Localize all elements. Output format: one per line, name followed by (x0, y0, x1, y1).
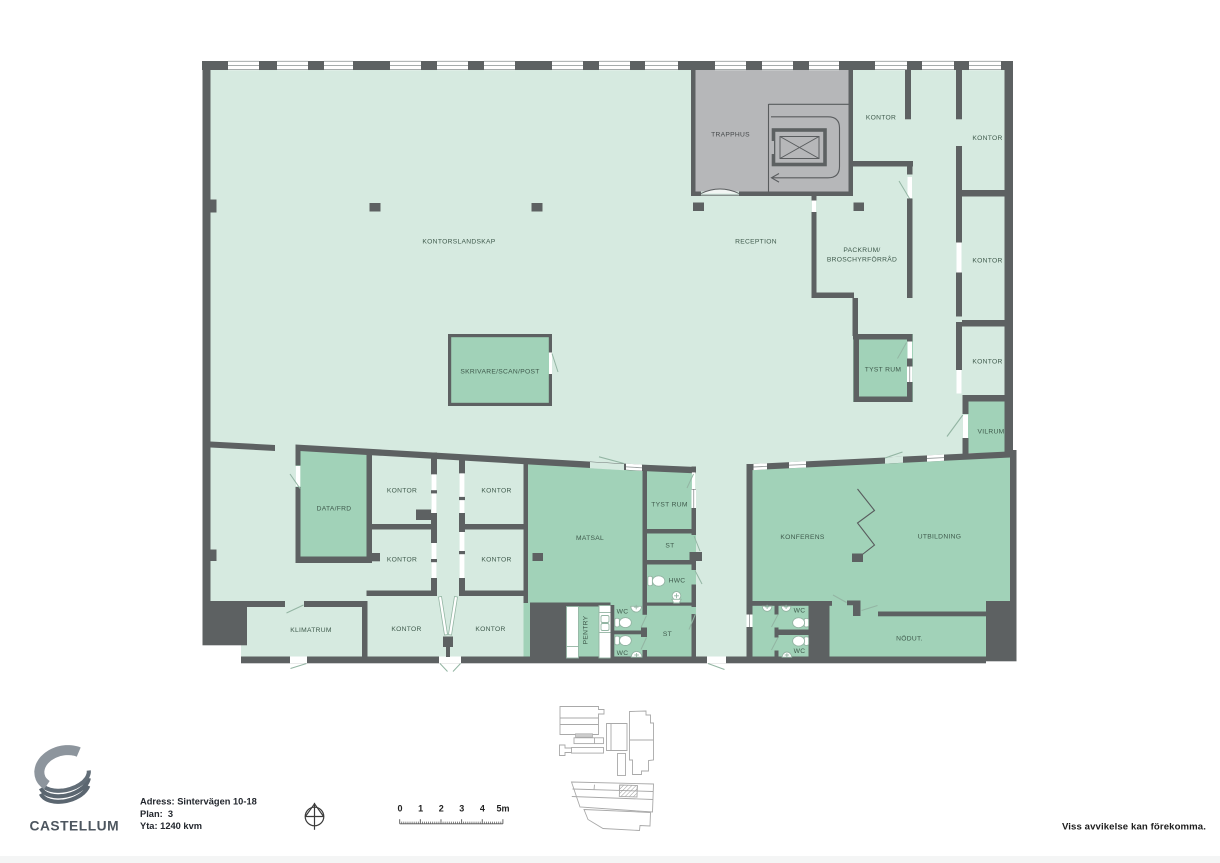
svg-text:KONTOR: KONTOR (972, 359, 1002, 366)
svg-text:1: 1 (418, 804, 423, 814)
svg-text:TYST RUM: TYST RUM (651, 502, 688, 509)
svg-text:HWC: HWC (669, 578, 686, 585)
svg-text:PACKRUM/: PACKRUM/ (843, 247, 880, 254)
svg-text:NÖDUT.: NÖDUT. (896, 635, 923, 643)
svg-text:WC: WC (794, 648, 806, 655)
svg-text:SKRIVARE/SCAN/POST: SKRIVARE/SCAN/POST (460, 369, 539, 376)
svg-text:0: 0 (397, 804, 402, 814)
svg-text:KONTOR: KONTOR (475, 626, 505, 633)
svg-text:5m: 5m (496, 804, 509, 814)
svg-text:CASTELLUM: CASTELLUM (30, 819, 120, 834)
svg-text:WC: WC (794, 608, 806, 615)
svg-text:Viss avvikelse kan förekomma.: Viss avvikelse kan förekomma. (1062, 822, 1206, 833)
svg-text:KONTOR: KONTOR (481, 557, 511, 564)
svg-text:KONFERENS: KONFERENS (780, 534, 825, 541)
svg-text:VILRUM: VILRUM (977, 429, 1004, 436)
svg-text:PENTRY: PENTRY (583, 615, 590, 644)
svg-text:KONTOR: KONTOR (391, 626, 421, 633)
svg-text:MATSAL: MATSAL (576, 535, 604, 542)
svg-text:DATA/FRD: DATA/FRD (317, 506, 352, 513)
svg-text:KONTOR: KONTOR (481, 488, 511, 495)
svg-text:KLIMATRUM: KLIMATRUM (290, 627, 332, 634)
svg-text:4: 4 (480, 804, 485, 814)
svg-text:BROSCHYRFÖRRÅD: BROSCHYRFÖRRÅD (827, 255, 897, 264)
svg-text:Plan: 3: Plan: 3 (140, 809, 173, 819)
svg-text:WC: WC (617, 650, 629, 657)
svg-text:KONTOR: KONTOR (866, 115, 896, 122)
svg-text:TRAPPHUS: TRAPPHUS (711, 132, 750, 139)
svg-text:KONTOR: KONTOR (387, 557, 417, 564)
svg-text:UTBILDNING: UTBILDNING (918, 534, 962, 541)
svg-text:TYST RUM: TYST RUM (865, 367, 902, 374)
svg-text:KONTOR: KONTOR (972, 135, 1002, 142)
svg-text:3: 3 (459, 804, 464, 814)
svg-text:KONTOR: KONTOR (972, 258, 1002, 265)
svg-text:KONTOR: KONTOR (387, 488, 417, 495)
svg-text:Adress: Sintervägen 10-18: Adress: Sintervägen 10-18 (140, 797, 257, 807)
svg-text:ST: ST (663, 631, 672, 638)
svg-text:ST: ST (665, 543, 674, 550)
svg-text:Yta: 1240 kvm: Yta: 1240 kvm (140, 821, 202, 831)
svg-text:KONTORSLANDSKAP: KONTORSLANDSKAP (422, 239, 495, 246)
svg-text:RECEPTION: RECEPTION (735, 239, 777, 246)
svg-text:WC: WC (617, 609, 629, 616)
svg-text:2: 2 (439, 804, 444, 814)
